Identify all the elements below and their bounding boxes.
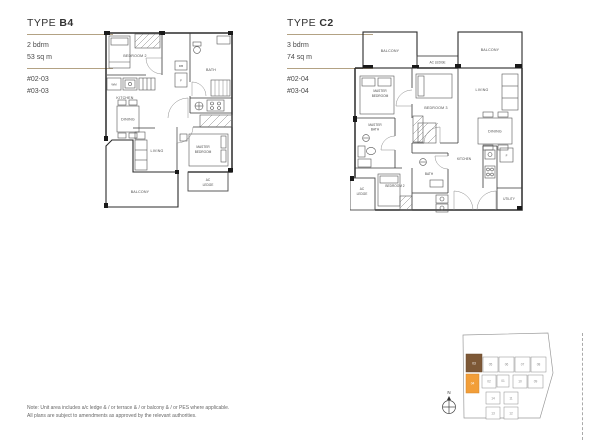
unit-number: 01 bbox=[501, 379, 505, 383]
ac-ledge-label-1: AC bbox=[206, 178, 211, 182]
bedroom2-label: BEDROOM 2 bbox=[123, 54, 146, 58]
door-swing-icon bbox=[146, 58, 162, 74]
north-label: N bbox=[447, 390, 450, 395]
master-bedroom-label-2: BEDROOM bbox=[195, 150, 212, 154]
balcony-label: BALCONY bbox=[131, 190, 150, 194]
fridge-label: F bbox=[506, 154, 508, 158]
unit-number: 10 bbox=[518, 380, 522, 384]
kitchen-label: KITCHEN bbox=[116, 96, 133, 100]
kitchen-sink-icon bbox=[123, 78, 137, 90]
plan-c2-exterior-walls bbox=[350, 32, 522, 210]
bath-label: BATH bbox=[206, 68, 216, 72]
bedroom3-label: BEDROOM 3 bbox=[424, 106, 447, 110]
wardrobe-hatch-icon bbox=[135, 34, 160, 48]
plan-c2-title-prefix: TYPE bbox=[287, 17, 319, 29]
living-label: LIVING bbox=[476, 88, 489, 92]
unit-number: 02 bbox=[487, 380, 491, 384]
unit-number: 03 bbox=[472, 362, 476, 366]
door-swing-icon bbox=[381, 136, 395, 150]
unit-number: 05 bbox=[489, 363, 493, 367]
bed-icon bbox=[416, 74, 452, 98]
unit-number: 06 bbox=[505, 363, 509, 367]
utility-label: UTILITY bbox=[503, 197, 516, 201]
kitchen-label: KITCHEN bbox=[457, 157, 472, 161]
bed-icon bbox=[109, 36, 130, 68]
hob-icon bbox=[485, 166, 495, 178]
balcony-left-label: BALCONY bbox=[381, 49, 400, 53]
door-swing-icon bbox=[168, 98, 188, 118]
unit-number: 13 bbox=[491, 412, 495, 416]
page-fold-dashed-line bbox=[582, 333, 583, 440]
ac-ledge-left-label-2: LEDGE bbox=[357, 192, 368, 196]
north-compass-icon: N bbox=[443, 390, 456, 414]
bath-label: BATH bbox=[425, 172, 434, 176]
bedroom2-label: BEDROOM 2 bbox=[385, 184, 404, 188]
door-swing-icon bbox=[424, 127, 440, 143]
door-swing-icon bbox=[192, 82, 206, 96]
disclaimer-note: Note: Unit area includes a/c ledge & / o… bbox=[27, 404, 229, 420]
wardrobe-hatch-icon bbox=[400, 196, 412, 210]
unit-number: 11 bbox=[509, 397, 513, 401]
wm-label: WM bbox=[111, 83, 117, 87]
unit-number: 12 bbox=[509, 412, 513, 416]
bed-icon bbox=[378, 174, 400, 206]
master-bedroom-label-2: BEDROOM bbox=[372, 94, 389, 98]
master-bath-label-2: BATH bbox=[371, 128, 380, 132]
dining-label: DINING bbox=[121, 118, 135, 122]
master-bath-label-1: MASTER bbox=[368, 123, 382, 127]
living-label: LIVING bbox=[151, 149, 164, 153]
disclaimer-line-1: Note: Unit area includes a/c ledge & / o… bbox=[27, 404, 229, 412]
unit-number: 09 bbox=[534, 380, 538, 384]
site-key-plan: 03 05 06 07 08 04 02 01 10 09 14 11 13 1… bbox=[438, 330, 588, 440]
door-swing-icon bbox=[177, 127, 193, 143]
hob-icon bbox=[207, 100, 224, 111]
ac-ledge-top-label: AC LEDGE bbox=[429, 61, 445, 65]
keyplan-units: 03 05 06 07 08 04 02 01 10 09 14 11 13 1… bbox=[466, 354, 546, 419]
unit-number: 04 bbox=[471, 382, 475, 386]
round-sink-icon bbox=[195, 102, 203, 110]
north-arrow bbox=[447, 396, 451, 400]
floorplan-brochure-page: { "plan_b4": { "title_prefix": "TYPE ", … bbox=[0, 0, 600, 440]
door-swing-icon bbox=[435, 156, 448, 169]
master-bedroom-label-1: MASTER bbox=[196, 145, 210, 149]
unit-number: 08 bbox=[537, 363, 541, 367]
unit-number: 07 bbox=[521, 363, 525, 367]
unit-number: 14 bbox=[491, 397, 495, 401]
ac-ledge-left-label-1: AC bbox=[360, 187, 365, 191]
plan-c2-floorplan: BALCONY AC LEDGE BALCONY MASTER BEDROOM … bbox=[350, 28, 565, 223]
kitchen-sink-icon bbox=[485, 150, 495, 159]
dining-label: DINING bbox=[488, 130, 502, 134]
fridge-label: F bbox=[180, 79, 182, 83]
door-swing-icon bbox=[396, 90, 412, 106]
door-swing-icon bbox=[454, 191, 496, 210]
disclaimer-line-2: All plans are subject to amendments as a… bbox=[27, 412, 229, 420]
plan-b4-floorplan: BEDROOM 2 WM KITCHEN DINING DB F BATH bbox=[25, 28, 240, 220]
ac-ledge-label-2: LEDGE bbox=[203, 183, 214, 187]
wardrobe-hatch-icon bbox=[200, 115, 232, 127]
sofa-icon bbox=[502, 74, 518, 110]
bath-fixtures bbox=[358, 135, 376, 167]
plan-c2-title-code: C2 bbox=[319, 17, 333, 29]
db-label: DB bbox=[179, 64, 183, 68]
hob-icon bbox=[139, 78, 155, 90]
balcony-right-label: BALCONY bbox=[481, 48, 500, 52]
bath-fixtures bbox=[193, 36, 230, 96]
master-bedroom-label-1: MASTER bbox=[373, 89, 387, 93]
